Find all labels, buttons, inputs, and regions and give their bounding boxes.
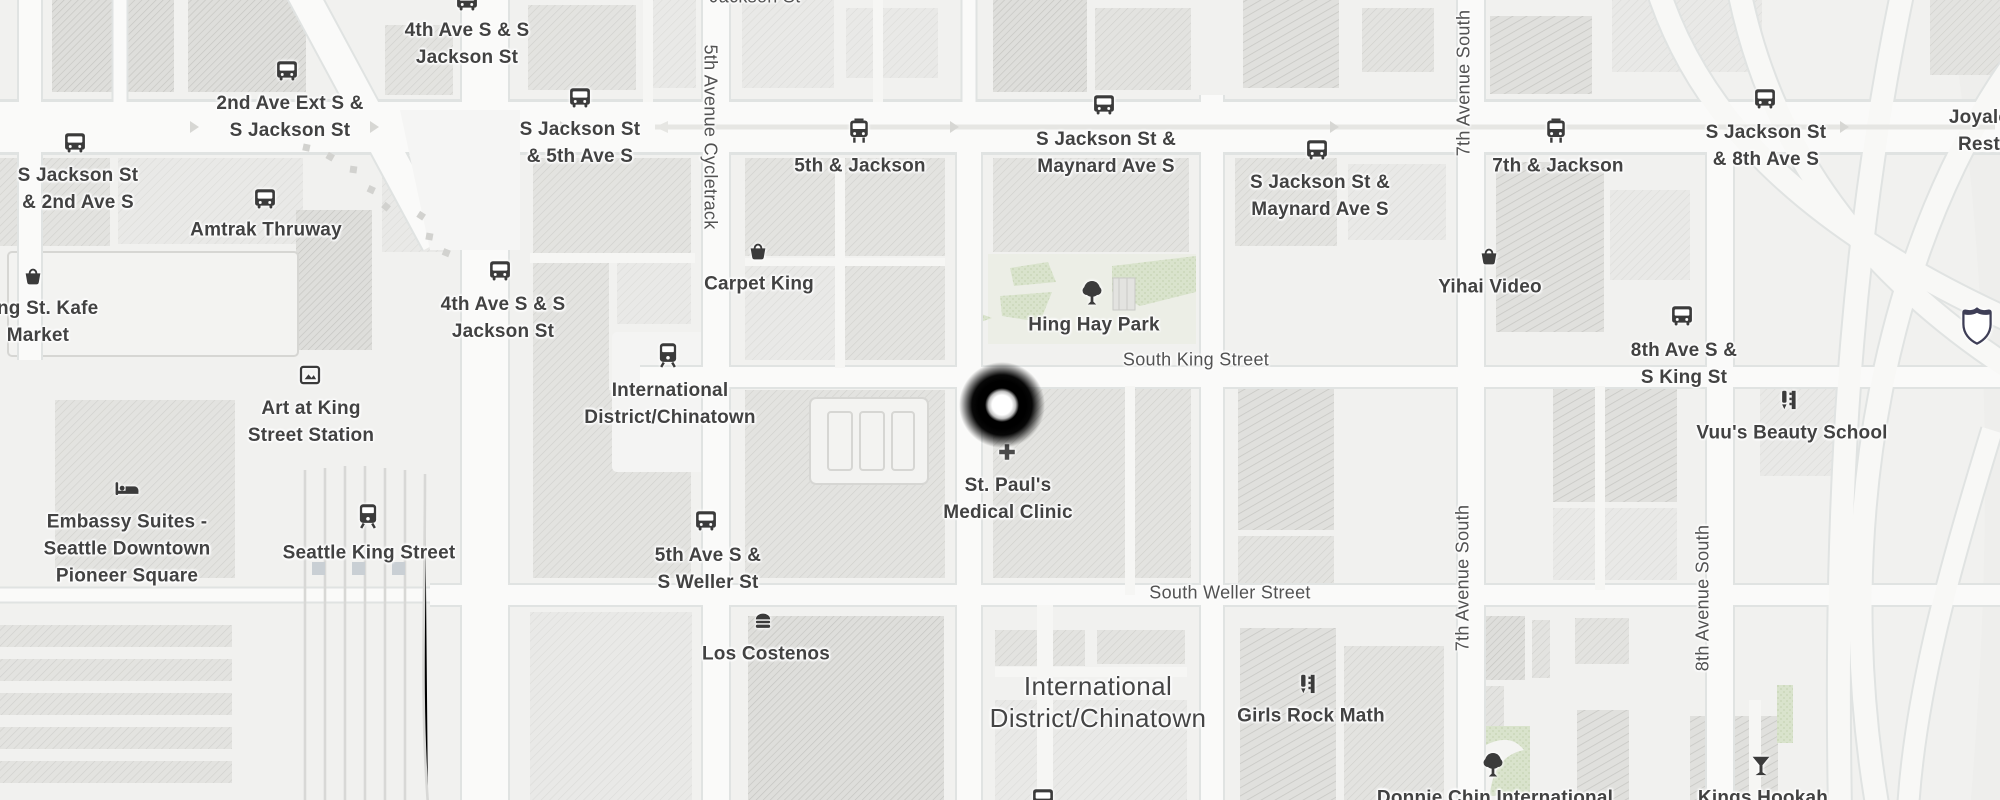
stop-7th-and-jackson: 7th & Jackson: [1492, 153, 1623, 180]
stop-amtrak-thruway: Amtrak Thruway: [190, 217, 342, 244]
basket-icon: [748, 241, 769, 262]
basket-icon: [23, 266, 44, 287]
poi-art-at-king-street-station: Art at KingStreet Station: [248, 395, 374, 449]
poi-donnie-chin-international-text: Donnie Chin International: [1377, 785, 1613, 800]
poi-st-pauls-medical-clinic: St. Paul'sMedical Clinic: [943, 472, 1073, 526]
poi-girls-rock-math-text: Girls Rock Math: [1237, 703, 1385, 730]
bus-icon: [1093, 94, 1116, 117]
street-8th-avenue-south: 8th Avenue South: [1690, 525, 1717, 672]
street-south-weller-street-text: South Weller Street: [1149, 580, 1310, 607]
bus-icon: [1306, 139, 1329, 162]
street-5th-avenue-cycletrack: 5th Avenue Cycletrack: [697, 44, 724, 229]
tree-icon: [1480, 752, 1507, 779]
frame-icon: [298, 363, 322, 387]
neighborhood-international-district-text: District/Chinatown: [990, 702, 1207, 734]
street-7th-avenue-south-south-text: 7th Avenue South: [1450, 505, 1477, 652]
map-canvas[interactable]: Jackson St4th Ave S & SJackson St2nd Ave…: [0, 0, 2000, 800]
stop-s-jackson-maynard-west-text: Maynard Ave S: [1036, 153, 1176, 180]
bus-icon: [276, 60, 299, 83]
train-icon: [655, 342, 681, 368]
beauty-icon: [1297, 673, 1319, 695]
poi-embassy-suites-text: Pioneer Square: [44, 563, 211, 590]
stop-s-jackson-st-8th-ave-s-text: & 8th Ave S: [1706, 146, 1827, 173]
poi-king-st-kafe-market-text: Market: [0, 322, 98, 349]
stop-2nd-ave-ext-s-jackson-st-text: 2nd Ave Ext S &: [216, 90, 363, 117]
train-icon: [355, 503, 381, 529]
stop-amtrak-thruway-text: Amtrak Thruway: [190, 217, 342, 244]
stop-8th-ave-s-s-king-st-text: 8th Ave S &: [1631, 337, 1737, 364]
stop-8th-ave-s-s-king-st-text: S King St: [1631, 364, 1737, 391]
street-7th-avenue-south-north-text: 7th Avenue South: [1451, 10, 1478, 157]
bus-icon: [1754, 88, 1777, 111]
stop-s-jackson-maynard-east-text: S Jackson St &: [1250, 169, 1390, 196]
poi-art-at-king-street-station-text: Street Station: [248, 422, 374, 449]
poi-yihai-video: Yihai Video: [1438, 274, 1542, 301]
bus-icon: [456, 0, 479, 13]
street-7th-avenue-south-south: 7th Avenue South: [1450, 505, 1477, 652]
neighborhood-international-district: InternationalDistrict/Chinatown: [990, 670, 1207, 734]
station-international-district-text: District/Chinatown: [584, 404, 755, 431]
tram-icon: [846, 118, 872, 144]
bus-icon: [695, 510, 718, 533]
stop-s-jackson-st-5th-ave-s-text: & 5th Ave S: [520, 143, 641, 170]
stop-5th-ave-s-s-weller-st-text: 5th Ave S &: [655, 542, 761, 569]
shield-icon: [1962, 307, 1992, 345]
beauty-icon: [1778, 389, 1800, 411]
street-8th-avenue-south-text: 8th Avenue South: [1690, 525, 1717, 672]
stop-7th-and-jackson-text: 7th & Jackson: [1492, 153, 1623, 180]
stop-5th-and-jackson-text: 5th & Jackson: [794, 153, 925, 180]
poi-king-st-kafe-market-text: King St. Kafe: [0, 295, 98, 322]
stop-2nd-ave-ext-s-jackson-st: 2nd Ave Ext S &S Jackson St: [216, 90, 363, 144]
stop-s-jackson-st-8th-ave-s: S Jackson St& 8th Ave S: [1706, 119, 1827, 173]
stop-4th-ave-s-jackson-st-north-text: Jackson St: [405, 44, 530, 71]
stop-s-jackson-st-2nd-ave-s-text: & 2nd Ave S: [18, 189, 139, 216]
stop-s-jackson-st-8th-ave-s-text: S Jackson St: [1706, 119, 1827, 146]
poi-joyale-restaurant: JoyaleRest: [1949, 104, 2000, 158]
poi-embassy-suites-text: Embassy Suites -: [44, 509, 211, 536]
poi-carpet-king: Carpet King: [704, 271, 814, 298]
bus-icon: [569, 87, 592, 110]
station-international-district-text: International: [584, 377, 755, 404]
poi-st-pauls-medical-clinic-text: Medical Clinic: [943, 499, 1073, 526]
burger-icon: [752, 610, 774, 632]
neighborhood-international-district-text: International: [990, 670, 1207, 702]
stop-s-jackson-st-5th-ave-s-text: S Jackson St: [520, 116, 641, 143]
stop-s-jackson-st-2nd-ave-s-text: S Jackson St: [18, 162, 139, 189]
stop-2nd-ave-ext-s-jackson-st-text: S Jackson St: [216, 117, 363, 144]
bus-icon: [489, 260, 512, 283]
poi-yihai-video-text: Yihai Video: [1438, 274, 1542, 301]
poi-joyale-restaurant-text: Joyale: [1949, 104, 2000, 131]
stop-8th-ave-s-s-king-st: 8th Ave S &S King St: [1631, 337, 1737, 391]
poi-vuus-beauty-school: Vuu's Beauty School: [1696, 420, 1887, 447]
poi-king-st-kafe-market: King St. KafeMarket: [0, 295, 98, 349]
station-seattle-king-street-text: Seattle King Street: [283, 540, 456, 567]
poi-hing-hay-park: Hing Hay Park: [1028, 312, 1159, 339]
pickup-pin-hole: [985, 388, 1019, 422]
stop-s-jackson-st-5th-ave-s: S Jackson St& 5th Ave S: [520, 116, 641, 170]
basket-icon: [1479, 246, 1500, 267]
street-south-king-street-text: South King Street: [1123, 347, 1269, 374]
poi-kings-hookah-text: Kings Hookah: [1698, 785, 1828, 800]
stop-s-jackson-maynard-east-text: Maynard Ave S: [1250, 196, 1390, 223]
street-south-weller-street: South Weller Street: [1149, 580, 1310, 607]
poi-embassy-suites-text: Seattle Downtown: [44, 536, 211, 563]
poi-st-pauls-medical-clinic-text: St. Paul's: [943, 472, 1073, 499]
stop-s-jackson-maynard-west: S Jackson St &Maynard Ave S: [1036, 126, 1176, 180]
poi-los-costenos: Los Costenos: [702, 641, 830, 668]
station-international-district: InternationalDistrict/Chinatown: [584, 377, 755, 431]
stop-4th-ave-s-jackson-st-south-text: 4th Ave S & S: [441, 291, 566, 318]
bus-icon: [1671, 305, 1694, 328]
poi-los-costenos-text: Los Costenos: [702, 641, 830, 668]
tram-icon: [1543, 118, 1569, 144]
stop-4th-ave-s-jackson-st-north: 4th Ave S & SJackson St: [405, 17, 530, 71]
martini-icon: [1749, 754, 1773, 778]
street-7th-avenue-south-north: 7th Avenue South: [1451, 10, 1478, 157]
stop-4th-ave-s-jackson-st-south: 4th Ave S & SJackson St: [441, 291, 566, 345]
stop-5th-and-jackson: 5th & Jackson: [794, 153, 925, 180]
poi-embassy-suites: Embassy Suites -Seattle DowntownPioneer …: [44, 509, 211, 590]
stop-s-jackson-st-2nd-ave-s: S Jackson St& 2nd Ave S: [18, 162, 139, 216]
poi-hing-hay-park-text: Hing Hay Park: [1028, 312, 1159, 339]
stop-4th-ave-s-jackson-st-south-text: Jackson St: [441, 318, 566, 345]
street-jackson-st-top: Jackson St: [709, 0, 800, 11]
stop-s-jackson-maynard-east: S Jackson St &Maynard Ave S: [1250, 169, 1390, 223]
poi-donnie-chin-international: Donnie Chin International: [1377, 785, 1613, 800]
poi-joyale-restaurant-text: Rest: [1949, 131, 2000, 158]
stop-s-jackson-maynard-west-text: S Jackson St &: [1036, 126, 1176, 153]
stop-5th-ave-s-s-weller-st-text: S Weller St: [655, 569, 761, 596]
bus-icon: [64, 132, 87, 155]
poi-kings-hookah: Kings Hookah: [1698, 785, 1828, 800]
street-5th-avenue-cycletrack-text: 5th Avenue Cycletrack: [697, 44, 724, 229]
bus-icon: [254, 188, 277, 211]
tree-icon: [1079, 280, 1106, 307]
stop-4th-ave-s-jackson-st-north-text: 4th Ave S & S: [405, 17, 530, 44]
street-south-king-street: South King Street: [1123, 347, 1269, 374]
poi-vuus-beauty-school-text: Vuu's Beauty School: [1696, 420, 1887, 447]
poi-art-at-king-street-station-text: Art at King: [248, 395, 374, 422]
poi-carpet-king-text: Carpet King: [704, 271, 814, 298]
bus-icon: [1032, 788, 1055, 800]
street-jackson-st-top-text: Jackson St: [709, 0, 800, 11]
poi-girls-rock-math: Girls Rock Math: [1237, 703, 1385, 730]
bed-icon: [114, 479, 140, 499]
station-seattle-king-street: Seattle King Street: [283, 540, 456, 567]
stop-5th-ave-s-s-weller-st: 5th Ave S &S Weller St: [655, 542, 761, 596]
